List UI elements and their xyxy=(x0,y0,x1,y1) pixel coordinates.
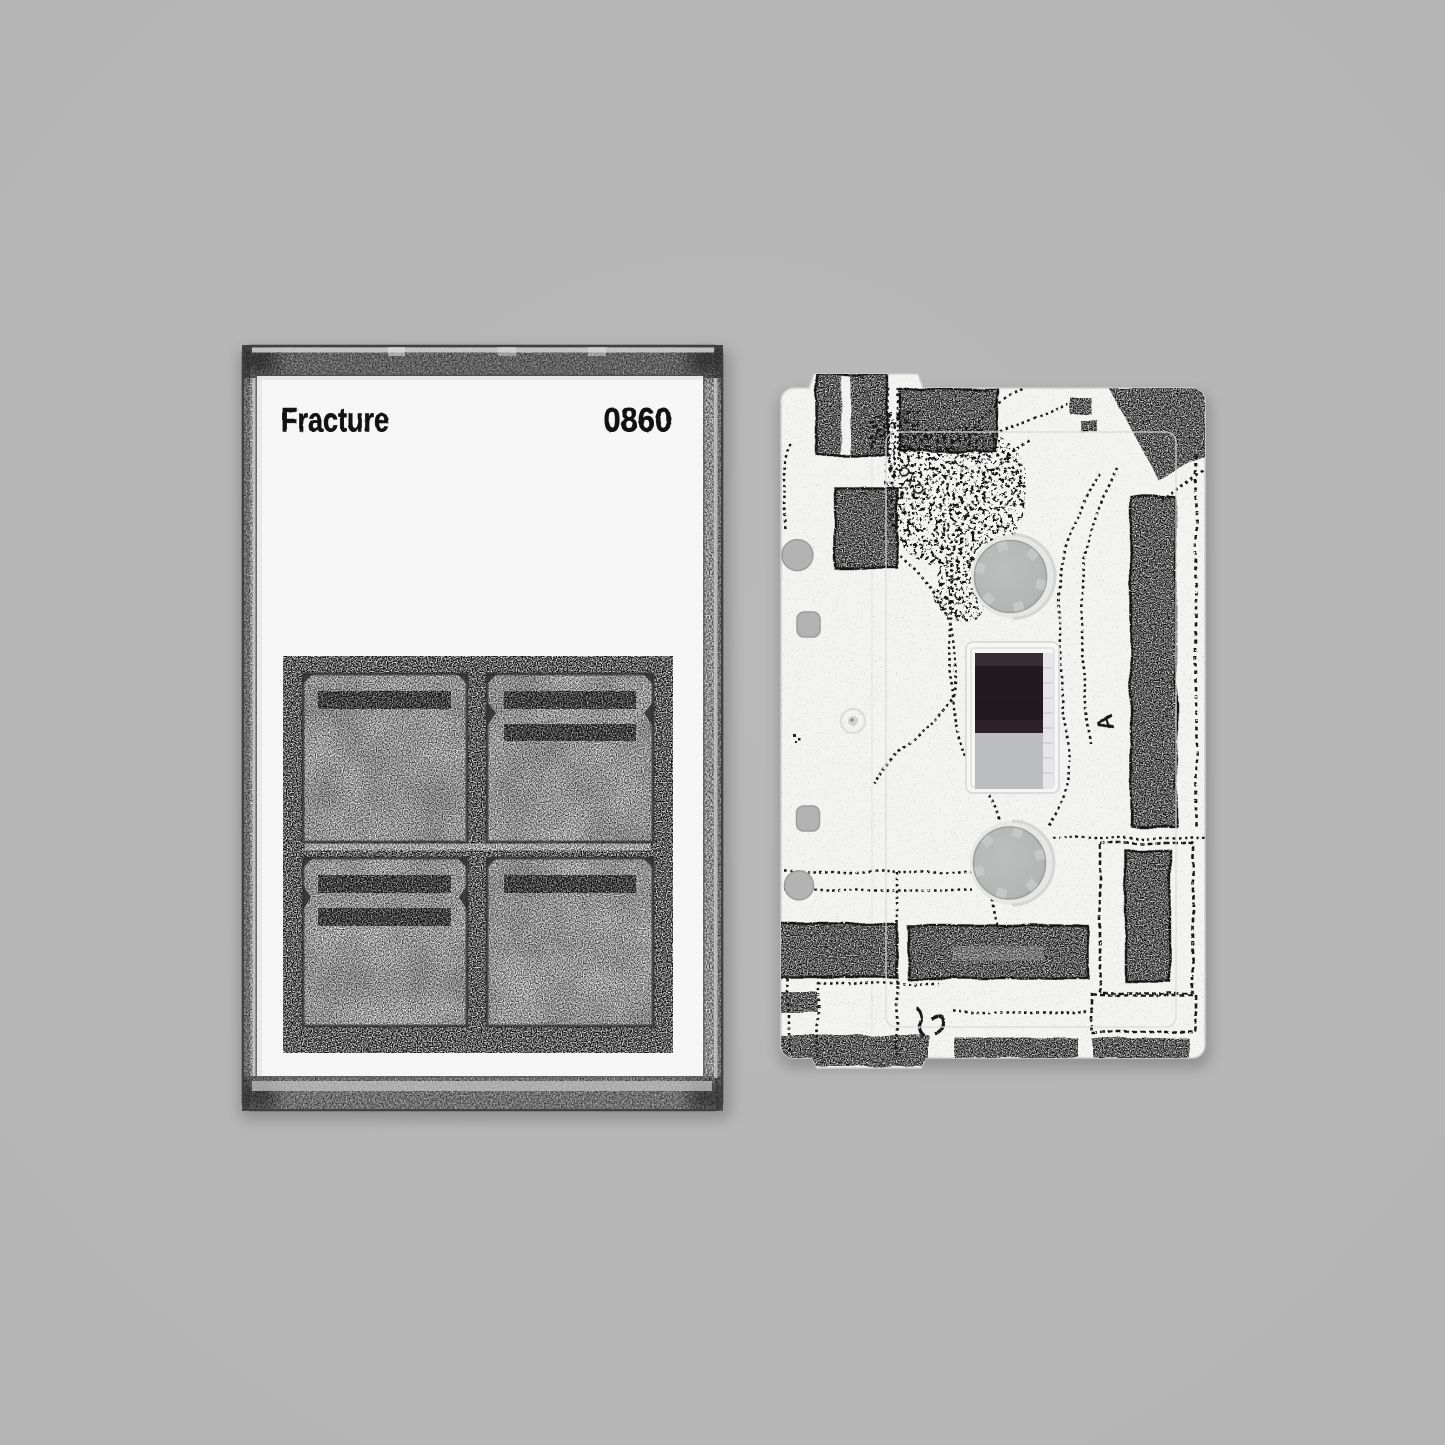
svg-text:0860: 0860 xyxy=(604,402,673,440)
svg-text:Fracture: Fracture xyxy=(281,402,389,440)
